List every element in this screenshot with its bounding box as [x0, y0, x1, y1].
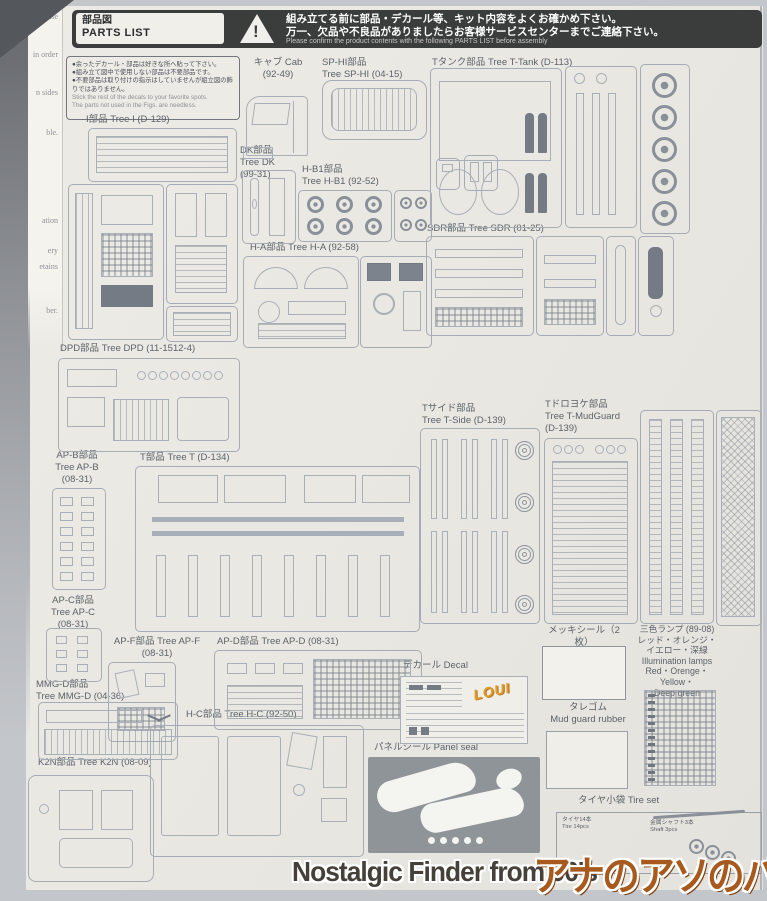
tree-box-sdr-3 — [606, 236, 636, 336]
label-tree-t-mudguard: Tドロヨケ部品 Tree T-MudGuard (D-139) — [545, 399, 620, 434]
tree-box-t-tank — [430, 68, 562, 228]
tree-box-h-b1-4 — [464, 155, 498, 191]
tree-box-dk — [242, 170, 296, 244]
tree-box-ap-b — [52, 488, 106, 590]
tree-box-h-b1-2 — [394, 190, 432, 242]
decal-logo: LOUI — [472, 679, 512, 702]
tree-box-t — [135, 466, 420, 632]
label-tree-i: I部品 Tree I (D-129) — [86, 114, 170, 126]
notes-box: ●余ったデカール・部品は好きな所へ貼って下さい。 ●組み立て図中で使用しない部品… — [66, 56, 240, 120]
edge-text-fragment: ery — [48, 246, 58, 255]
booklet-spine-shadow — [0, 0, 30, 740]
label-tree-ap-c: AP-C部品 Tree AP-C (08-31) — [42, 595, 104, 630]
label-tire-set: タイヤ小袋 Tire set — [578, 795, 659, 807]
title-en: PARTS LIST — [82, 27, 218, 40]
tree-box-t-mudguard-2 — [640, 410, 714, 624]
label-tree-dpd: DPD部品 Tree DPD (11-1512-4) — [60, 343, 195, 355]
tree-box-i-1 — [88, 128, 237, 182]
tree-box-sp-hi — [322, 80, 427, 140]
tree-box-i-3 — [166, 184, 238, 304]
warning-text-jp: 組み立てる前に部品・デカール等、キット内容をよくお確かめ下さい。 万一、欠品や不… — [286, 13, 664, 38]
tree-box-t-mudguard — [544, 438, 638, 624]
tree-box-h-a-2 — [360, 256, 432, 348]
tree-box-i-2 — [68, 184, 164, 340]
cab-drawing — [246, 96, 308, 156]
tree-box-t-side — [420, 428, 540, 624]
parts-list-title: 部品図 PARTS LIST — [76, 13, 224, 44]
tree-box-k2n — [28, 775, 154, 882]
tree-box-t-tank-lenses — [640, 64, 690, 234]
edge-text-fragment: etains — [39, 262, 58, 271]
edge-text-fragment: in order — [33, 50, 58, 59]
edge-text-fragment: ber. — [46, 306, 58, 315]
panel-seal-image — [368, 757, 540, 853]
tree-box-i-4 — [166, 306, 238, 342]
label-cab: キャブ Cab (92-49) — [238, 57, 318, 81]
tree-box-h-c — [150, 725, 364, 857]
tire-set-box — [556, 812, 762, 874]
title-jp: 部品図 — [82, 15, 218, 27]
tree-box-t-mudguard-3 — [716, 410, 762, 626]
lamp-sprue — [644, 690, 716, 786]
mud-guard-rubber-sheet — [546, 731, 628, 789]
label-tree-ap-d: AP-D部品 Tree AP-D (08-31) — [217, 636, 339, 648]
label-tree-ap-f: AP-F部品 Tree AP-F (08-31) — [106, 636, 208, 660]
decal-sheet: LOUI — [400, 676, 528, 744]
tree-box-h-b1-3 — [436, 158, 460, 190]
note-jp-3: ●不要部品は取り付けの指示はしていませんが組立図の飾りではありません。 — [72, 77, 234, 93]
note-jp-1: ●余ったデカール・部品は好きな所へ貼って下さい。 — [72, 61, 234, 69]
note-en-2: The parts not used in the Figs. are need… — [72, 102, 234, 110]
tree-box-ap-d — [214, 650, 422, 730]
edge-text-fragment: ation — [42, 216, 58, 225]
label-tree-ap-b: AP-B部品 Tree AP-B (08-31) — [46, 450, 108, 485]
warning-triangle-icon: ! — [240, 14, 274, 43]
label-illumination-lamps: 三色ランプ (89-08) レッド・オレンジ・ イエロー・深緑 Illumina… — [632, 624, 722, 698]
photo-canvas: n case in order n sides ble. ation ery e… — [0, 0, 767, 901]
label-tree-h-b1: H-B1部品 Tree H-B1 (92-52) — [302, 164, 379, 188]
tree-box-dpd — [58, 358, 240, 452]
note-en-1: Stick the rest of the decals to your fav… — [72, 94, 234, 102]
edge-text-fragment: ble. — [46, 128, 58, 137]
label-tree-sp-hi: SP-HI部品 Tree SP-HI (04-15) — [322, 57, 402, 81]
warning-text-en: Please confirm the product contents with… — [286, 38, 547, 45]
tree-box-sdr-2 — [536, 236, 604, 336]
label-tree-t: T部品 Tree T (D-134) — [140, 452, 230, 464]
tree-box-t-tank-2 — [565, 66, 637, 228]
parts-list-banner: 部品図 PARTS LIST ! 組み立てる前に部品・デカール等、キット内容をよ… — [72, 10, 762, 48]
tree-box-sdr-4 — [638, 236, 674, 336]
tree-box-h-b1-1 — [298, 190, 392, 242]
tree-box-sdr-1 — [426, 236, 534, 336]
edge-text-fragment: n sides — [36, 88, 58, 97]
label-tree-t-side: Tサイド部品 Tree T-Side (D-139) — [422, 403, 506, 427]
tree-box-ap-c — [46, 628, 102, 682]
label-mud-guard-rubber: タレゴム Mud guard rubber — [545, 702, 631, 726]
plating-seal-sheet — [542, 646, 626, 700]
underpage-edge: n case in order n sides ble. ation ery e… — [28, 0, 63, 350]
tree-box-h-a-1 — [243, 256, 359, 348]
